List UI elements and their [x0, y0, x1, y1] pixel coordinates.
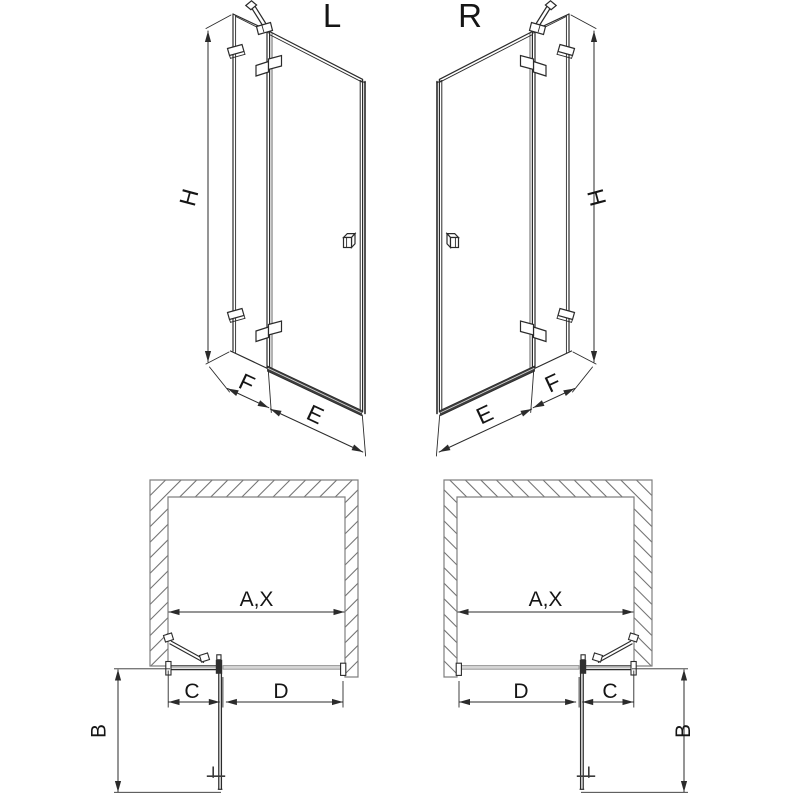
- label-variant-left: L: [323, 0, 341, 34]
- iso-view-right: [436, 1, 596, 456]
- plan-view-left: [114, 480, 358, 792]
- label-door-width-right: E: [472, 399, 497, 429]
- label-door-width-left: E: [303, 399, 328, 429]
- label-fixed-section-left: C: [184, 680, 199, 703]
- label-door-section-left: D: [273, 680, 288, 703]
- label-height-left: H: [174, 186, 203, 209]
- label-door-projection-right: B: [672, 724, 695, 738]
- label-variant-right: R: [458, 0, 482, 34]
- label-opening-width-right: A,X: [529, 588, 563, 611]
- label-door-section-right: D: [513, 680, 528, 703]
- shower-door-dimension-diagram: L H F E A,X C D B R H F E A,X D C B: [0, 0, 800, 800]
- label-door-projection-left: B: [88, 724, 111, 738]
- plan-view-right: [444, 480, 688, 792]
- labels-right-variant: R H F E A,X D C B: [458, 0, 695, 738]
- label-fixed-width-left: F: [235, 368, 259, 398]
- label-height-right: H: [582, 186, 611, 209]
- label-opening-width-left: A,X: [240, 588, 274, 611]
- diagram-canvas: L H F E A,X C D B R H F E A,X D C B: [0, 0, 800, 800]
- label-fixed-width-right: F: [541, 368, 565, 398]
- iso-view-left: [206, 1, 366, 456]
- labels-left-variant: L H F E A,X C D B: [88, 0, 342, 738]
- label-fixed-section-right: C: [602, 680, 617, 703]
